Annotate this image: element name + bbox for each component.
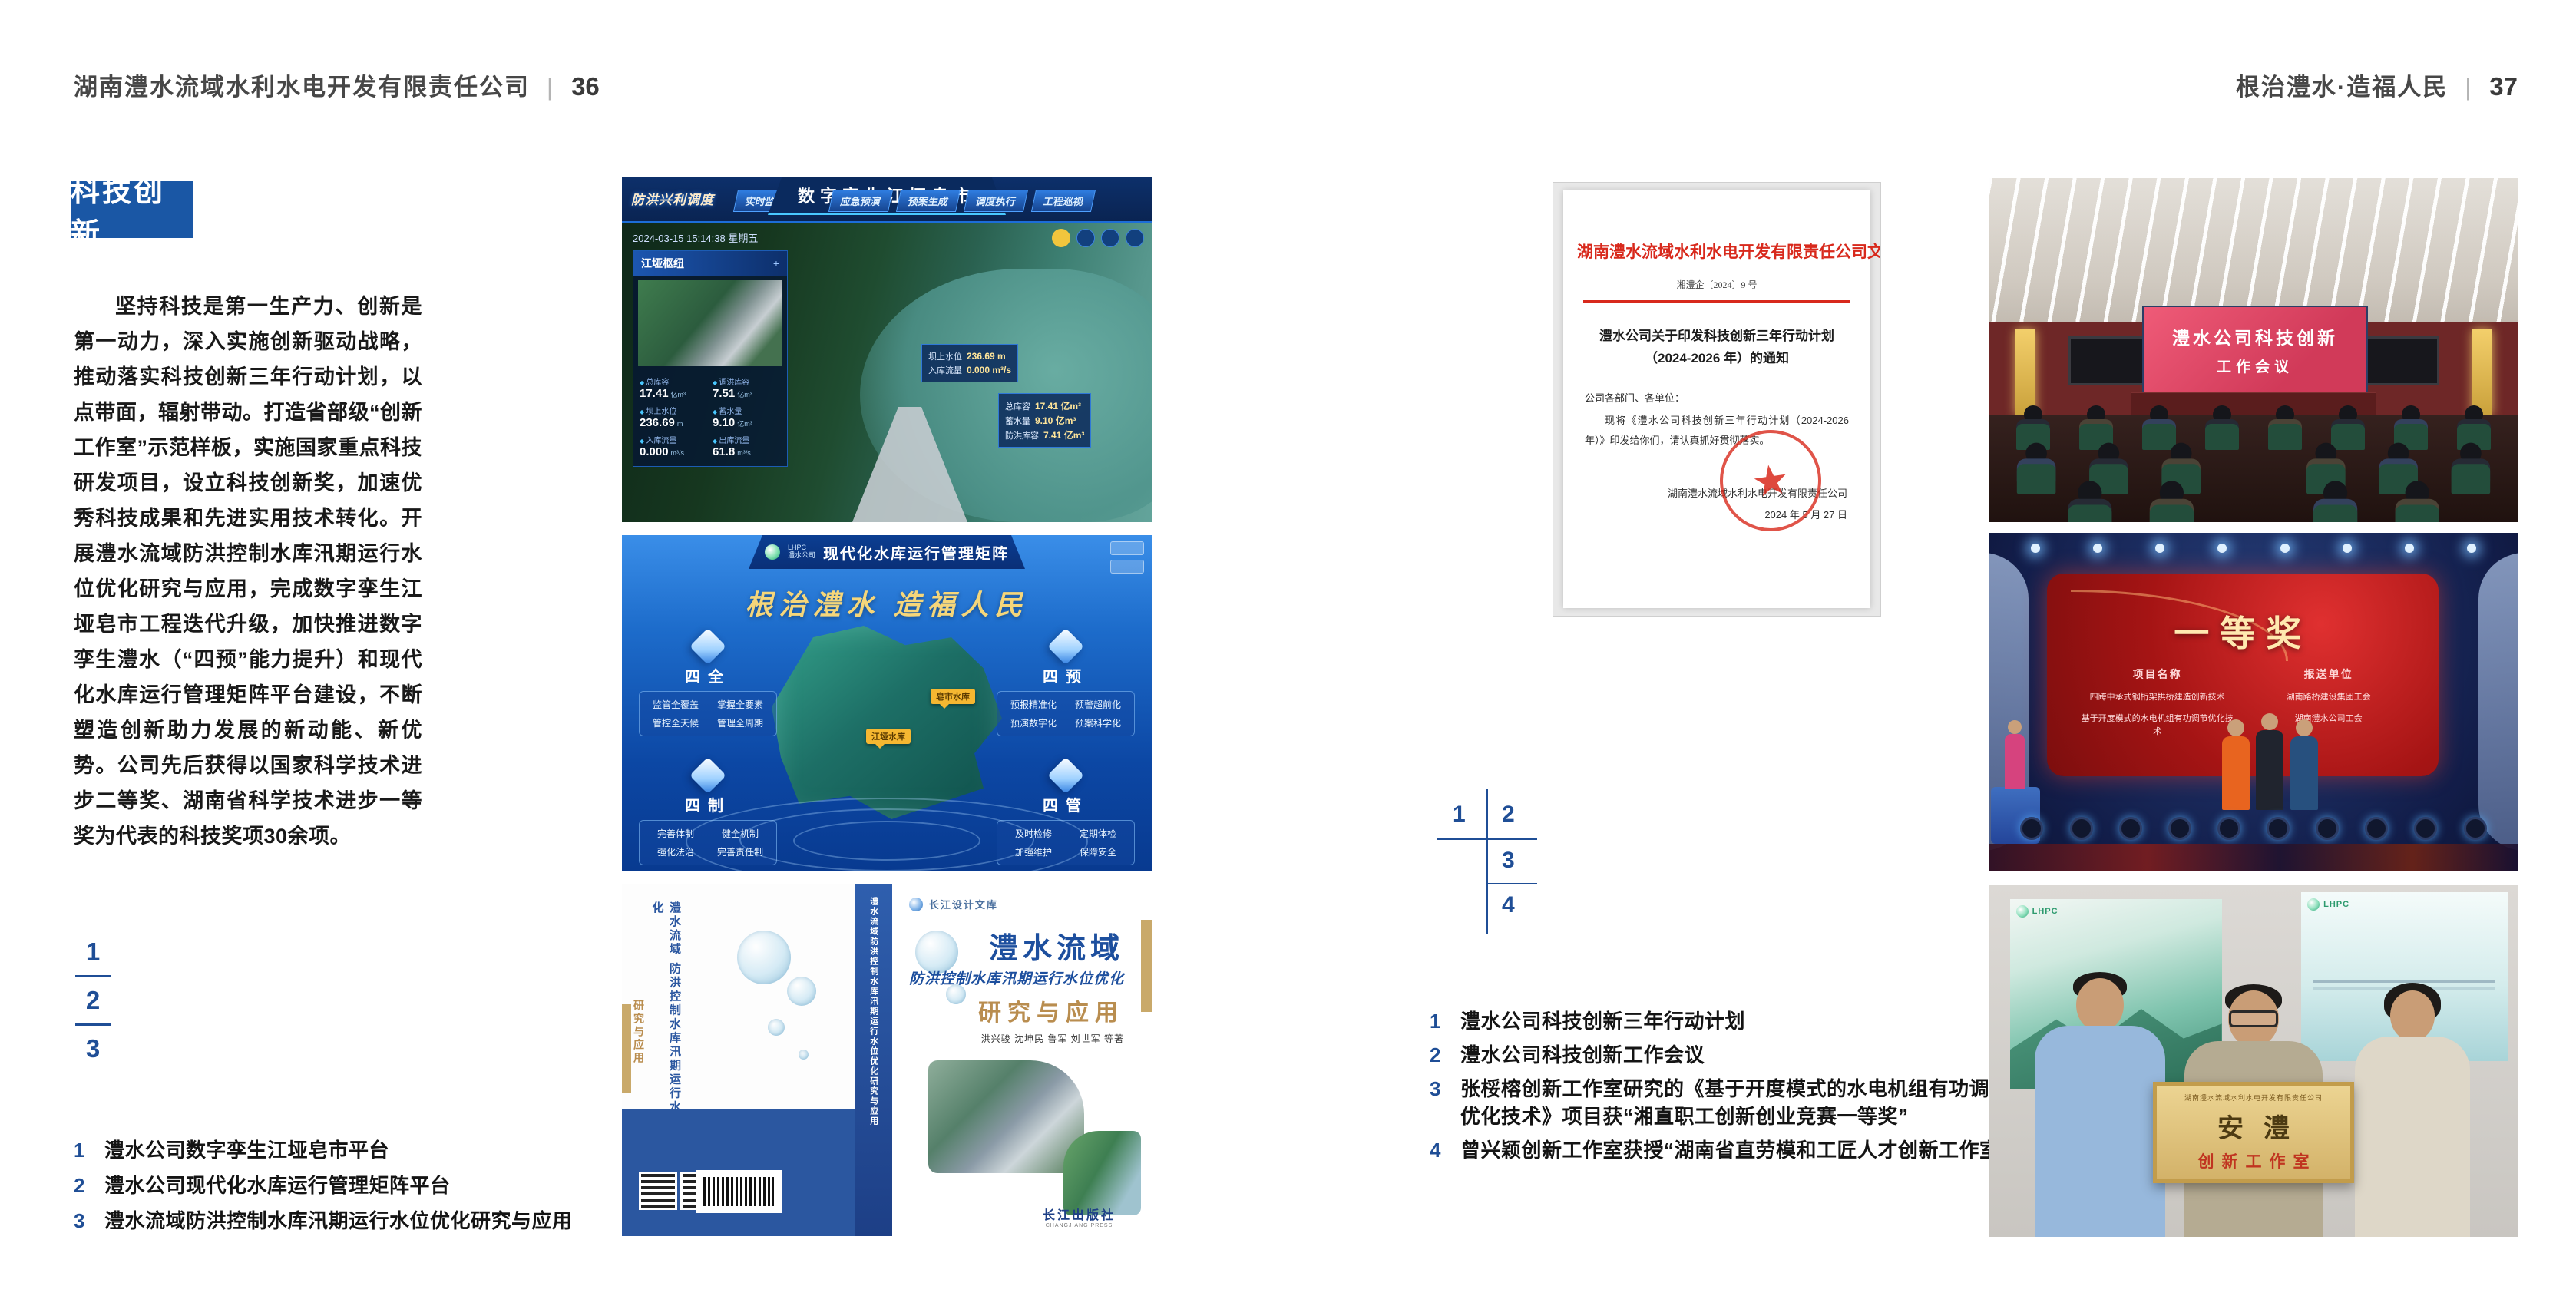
stage-light-fixtures [2020,817,2486,840]
document-number: 湘澧企〔2024〕9 号 [1563,278,1870,291]
powerhouse-photo [1063,1131,1141,1215]
bubble-graphic [737,931,791,984]
watershed-map [772,626,1002,819]
book-title-sub: 防洪控制水库汛期运行水位优化 [909,967,1124,988]
caption-text: 澧水公司数字孪生江垭皂市平台 [104,1136,389,1164]
bubble-graphic [799,1050,809,1060]
publisher-block: 长江出版社 CHANGJIANG PRESS [1043,1205,1116,1228]
publisher-name-en: CHANGJIANG PRESS [1043,1223,1116,1228]
bridge-graphic [2313,980,2495,983]
document-red-rule [1583,300,1850,303]
caption-row: 2 澧水公司现代化水库运行管理矩阵平台 [74,1172,642,1199]
hub-panel-title: 江垭枢纽 [641,256,684,271]
index-number: 2 [75,987,111,1014]
publisher-name: 长江出版社 [1043,1205,1116,1223]
caption-text: 澧水公司科技创新三年行动计划 [1460,1007,1745,1035]
stat-cell: 总库容 17.41亿m³ [640,375,708,400]
dashboard-tabs-right: 应急预演 预案生成 调度执行 工程巡视 [831,190,1093,212]
figure-workshop-plaque-photo: LHPC LHPC 湖南澧水流域水利水电开发有限责任公司 安澧 创新工作室 [1989,885,2518,1237]
map-data-tag: 坝上水位236.69 m 入库流量0.000 m³/s [921,344,1018,382]
poster-logo: LHPC [2307,898,2349,911]
document-salutation: 公司各部门、各单位： [1585,390,1849,405]
lit-pillar [2015,329,2035,415]
wall-tv [2068,336,2147,385]
header-divider: | [2465,74,2472,101]
meeting-screen: 澧水公司科技创新 工作会议 [2142,306,2368,395]
index-number: 2 [1502,802,1515,828]
settings-icon [1126,229,1144,247]
front-cover-gold-tab [1141,920,1152,1012]
publisher-logo-icon [909,898,923,911]
caption-number: 3 [1430,1075,1447,1103]
dashboard-datetime: 2024-03-15 15:14:38 星期五 [633,230,758,245]
back-cover-gold-tab [622,1004,631,1093]
presenter-suit [2256,730,2283,810]
awardee-blue [2290,736,2318,810]
lhpc-logo-icon [765,544,780,560]
figure-digital-twin-dashboard: 防洪兴利调度 实时监测 洪水预报 防洪预警 数字孪生江垭皂市 应急预演 预案生成… [622,177,1152,522]
hologram-ring [793,821,980,861]
plaque-subtitle: 创新工作室 [2191,1149,2317,1172]
page-number-right: 37 [2489,72,2518,101]
locate-icon [1101,229,1119,247]
hub-stats: 总库容 17.41亿m³ 调洪库容 7.51亿m³ 坝上水位 236.69m 蓄… [633,371,787,466]
layers-icon [1076,229,1095,247]
left-captions: 1 澧水公司数字孪生江垭皂市平台 2 澧水公司现代化水库运行管理矩阵平台 3 澧… [74,1136,642,1235]
qr-code [639,1172,677,1210]
audience-row [1989,481,2518,522]
barcode [696,1170,782,1213]
caption-number: 4 [1430,1136,1447,1164]
plaque-name: 安澧 [2197,1107,2310,1145]
right-figure-index: 1 2 3 4 [1437,789,1537,934]
dashboard-toolbar-icons [1052,229,1144,247]
button-icon [1110,541,1144,555]
stage-floor-reflection [1989,844,2518,871]
map-label-reservoir: 皂市水库 [931,689,975,704]
stat-cell: 出库流量 61.8m³/s [713,434,781,458]
wall-tv [2361,336,2439,385]
map-info-card: 总库容17.41 亿m³ 蓄水量9.10 亿m³ 防洪库容7.41 亿m³ [998,393,1091,448]
matrix-logo-text: LHPC澧水公司 [788,544,815,560]
caption-text: 澧水公司现代化水库运行管理矩阵平台 [104,1172,451,1199]
bubble-graphic [787,977,816,1006]
caption-row: 1 澧水公司科技创新三年行动计划 [1430,1007,2021,1035]
stat-cell: 坝上水位 236.69m [640,405,708,429]
magazine-spread: 湖南澧水流域水利水电开发有限责任公司 | 36 根治澧水·造福人民 | 37 科… [0,0,2576,1306]
caption-row: 3 澧水流域防洪控制水库汛期运行水位优化研究与应用 [74,1207,642,1235]
panel-icon [689,628,726,665]
user-icon [1052,229,1070,247]
workshop-plaque: 湖南澧水流域水利水电开发有限责任公司 安澧 创新工作室 [2153,1082,2354,1183]
figure-award-ceremony: 一等奖 项目名称 四跨中承式钢桁架拱桥建造创新技术 基于开度模式的水电机组有功调… [1989,533,2518,871]
page-number-left: 36 [571,72,600,101]
index-number: 4 [1502,892,1515,918]
index-number: 3 [75,1035,111,1063]
book-back-cover: 澧水流域 防洪控制水库汛期运行水位优化 研究与应用 [622,884,855,1236]
right-captions: 1 澧水公司科技创新三年行动计划 2 澧水公司科技创新工作会议 3 张桵榕创新工… [1430,1007,2021,1164]
plaque-org-line: 湖南澧水流域水利水电开发有限责任公司 [2184,1093,2323,1103]
series-name: 长江设计文库 [929,897,998,911]
lit-pillar [2472,329,2492,415]
index-divider-line [75,975,111,977]
stage-frame [2478,553,2518,850]
caption-number: 1 [1430,1007,1447,1035]
section-title: 科技创新 [71,181,193,238]
stat-cell: 调洪库容 7.51亿m³ [713,375,781,400]
dashboard-tab: 工程巡视 [1031,190,1096,212]
caption-number: 3 [74,1207,91,1235]
document-title: 澧水公司关于印发科技创新三年行动计划（2024-2026 年）的通知 [1594,326,1840,370]
lhpc-logo-icon [2016,905,2029,918]
matrix-header: LHPC澧水公司 现代化水库运行管理矩阵 [749,535,1025,569]
book-title-main: 澧水流域 [989,924,1124,967]
figure-book-cover: 澧水流域 防洪控制水库汛期运行水位优化 研究与应用 澧水流域防洪控制水库汛期运行… [622,884,1152,1236]
expand-icon: + [773,257,779,269]
caption-text: 澧水流域防洪控制水库汛期运行水位优化研究与应用 [104,1207,573,1235]
spotlights [2031,544,2476,553]
person-right [2338,990,2486,1237]
index-horizontal-line [1486,883,1537,884]
spine-title: 澧水流域防洪控制水库汛期运行水位优化研究与应用 [868,897,880,1127]
panel-icon [1047,757,1084,794]
dashboard-tab: 预案生成 [896,190,961,212]
lhpc-logo-icon [2307,898,2320,911]
matrix-panel-siquan: 四全 监管全覆盖掌握全要素 管控全天候管理全周期 [639,633,777,736]
screen-title-line2: 工作会议 [2217,355,2293,376]
index-horizontal-line [1437,838,1537,840]
award-title: 一等奖 [2047,606,2439,656]
figure-official-document: 湖南澧水流域水利水电开发有限责任公司文件 湘澧企〔2024〕9 号 澧水公司关于… [1553,182,1881,617]
index-vertical-line [1486,789,1488,934]
index-number: 1 [1453,802,1466,828]
bubble-graphic [768,1019,785,1036]
matrix-slogan: 根治澧水 造福人民 [745,583,1028,623]
company-name: 湖南澧水流域水利水电开发有限责任公司 [74,68,530,102]
caption-number: 2 [74,1172,91,1199]
book-title-tail: 研究与应用 [978,994,1124,1027]
index-divider-line [75,1023,111,1026]
meeting-ceiling [1989,178,2518,322]
left-page-header: 湖南澧水流域水利水电开发有限责任公司 | 36 [74,68,600,102]
matrix-panel-siyu: 四预 预报精准化预警超前化 预演数字化预案科学化 [997,633,1135,736]
index-number: 3 [1502,848,1515,874]
dashboard-tab: 调度执行 [964,190,1028,212]
figure-matrix-platform: LHPC澧水公司 现代化水库运行管理矩阵 根治澧水 造福人民 江垭水库 皂市水库… [622,535,1152,871]
caption-row: 3 张桵榕创新工作室研究的《基于开度模式的水电机组有功调节优化技术》项目获“湘直… [1430,1075,2021,1130]
book-spine: 澧水流域防洪控制水库汛期运行水位优化研究与应用 [855,884,892,1236]
back-cover-vertical-subtitle: 研究与应用 [631,1000,646,1065]
back-cover-blue-band [622,1109,855,1236]
slogan-text: 根治澧水·造福人民 [2236,68,2448,102]
button-icon [1110,560,1144,574]
document-body: 现将《澧水公司科技创新三年行动计划（2024-2026 年）》印发给你们，请认真… [1585,411,1849,451]
panel-icon [689,757,726,794]
caption-text: 张桵榕创新工作室研究的《基于开度模式的水电机组有功调节优化技术》项目获“湘直职工… [1460,1075,2021,1130]
header-divider: | [547,74,554,101]
series-logo: 长江设计文库 [909,897,998,911]
map-label-reservoir: 江垭水库 [866,729,911,744]
matrix-title: 现代化水库运行管理矩阵 [823,541,1009,564]
caption-text: 澧水公司科技创新工作会议 [1460,1041,1705,1069]
dashboard-tab: 应急预演 [828,190,893,212]
screen-title-line1: 澧水公司科技创新 [2172,323,2338,349]
stat-cell: 蓄水量 9.10亿m³ [713,405,781,429]
caption-number: 1 [74,1136,91,1164]
figure-meeting-photo: 澧水公司科技创新 工作会议 [1989,178,2518,522]
document-redhead: 湖南澧水流域水利水电开发有限责任公司文件 [1577,240,1857,263]
caption-row: 1 澧水公司数字孪生江垭皂市平台 [74,1136,642,1164]
award-column-projects: 项目名称 四跨中承式钢桁架拱桥建造创新技术 基于开度模式的水电机组有功调节优化技… [2078,666,2237,747]
awardee-orange [2222,736,2250,810]
book-authors: 洪兴骏 沈坤民 鲁军 刘世军 等著 [981,1032,1124,1045]
right-page-header: 根治澧水·造福人民 | 37 [2236,68,2518,102]
caption-row: 4 曾兴颖创新工作室获授“湖南省直劳模和工匠人才创新工作室” [1430,1136,2021,1164]
matrix-buttons [1110,541,1144,574]
document-sheet: 湖南澧水流域水利水电开发有限责任公司文件 湘澧企〔2024〕9 号 澧水公司关于… [1563,190,1870,608]
host-figure [2005,734,2025,789]
stat-cell: 入库流量 0.000m³/s [640,434,708,458]
caption-text: 曾兴颖创新工作室获授“湖南省直劳模和工匠人才创新工作室” [1460,1136,2010,1164]
star-icon [1751,461,1791,501]
left-figure-index: 1 2 3 [75,938,111,1063]
dam-thumbnail [638,280,782,366]
glasses-icon [2229,1010,2278,1027]
dashboard-corner-label: 防洪兴利调度 [631,189,714,208]
body-paragraph: 坚持科技是第一生产力、创新是第一动力，深入实施创新驱动战略，推动落实科技创新三年… [74,289,422,854]
caption-number: 2 [1430,1041,1447,1069]
panel-icon [1047,628,1084,665]
dam-photo [928,1060,1084,1173]
caption-row: 2 澧水公司科技创新工作会议 [1430,1041,2021,1069]
hub-panel: 江垭枢纽 + 总库容 17.41亿m³ 调洪库容 7.51亿m³ 坝上水位 23… [633,250,788,467]
index-number: 1 [75,938,111,966]
poster-logo: LHPC [2016,905,2058,918]
book-front-cover: 长江设计文库 澧水流域 防洪控制水库汛期运行水位优化 研究与应用 洪兴骏 沈坤民… [892,884,1152,1236]
